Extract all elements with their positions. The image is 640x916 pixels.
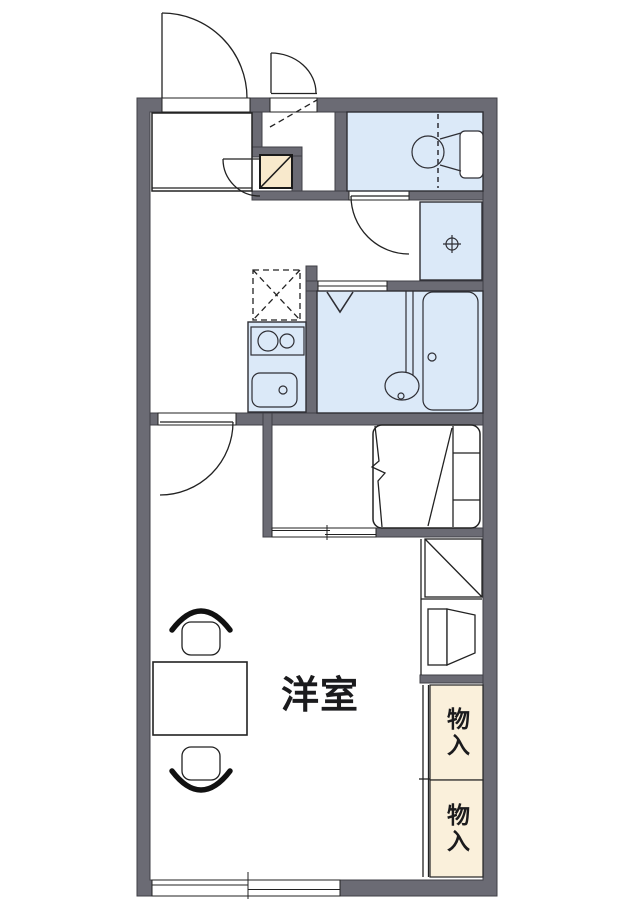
wall-storage-stub: [420, 675, 483, 683]
wall-nook-bottom: [376, 528, 483, 537]
shelf-unit-front: [447, 609, 475, 665]
wall-nook-left: [263, 413, 272, 537]
entry-side-room: [152, 113, 252, 191]
chair-bottom-seat: [182, 747, 220, 780]
chair-top-seat: [182, 622, 220, 655]
living-door-opening: [158, 413, 236, 425]
bed: [373, 425, 480, 528]
entry-door-arc: [271, 53, 316, 93]
entrance-opening: [162, 98, 250, 112]
main-room-label: 洋室: [278, 676, 362, 718]
washing-machine-pan: [420, 202, 482, 280]
nook-sliding-door: [272, 528, 376, 537]
floorplan-drawing: [0, 0, 640, 916]
entry-door-opening: [270, 98, 317, 112]
floorplan-canvas: 洋室 物入 物入: [0, 0, 640, 916]
storage-label-upper: 物入: [430, 686, 483, 779]
table: [153, 662, 247, 735]
washroom-door-arc: [351, 196, 409, 254]
toilet-tank: [460, 131, 483, 178]
wall-genkan-v1: [252, 112, 262, 148]
wall-genkan-v2: [292, 156, 302, 192]
wall-toilet-left: [335, 112, 347, 200]
shelf-unit-side: [428, 609, 447, 665]
living-door-arc: [160, 422, 233, 495]
storage-label-lower: 物入: [430, 781, 483, 876]
entrance-door-arc: [162, 13, 247, 98]
window-bottom: [152, 880, 340, 896]
